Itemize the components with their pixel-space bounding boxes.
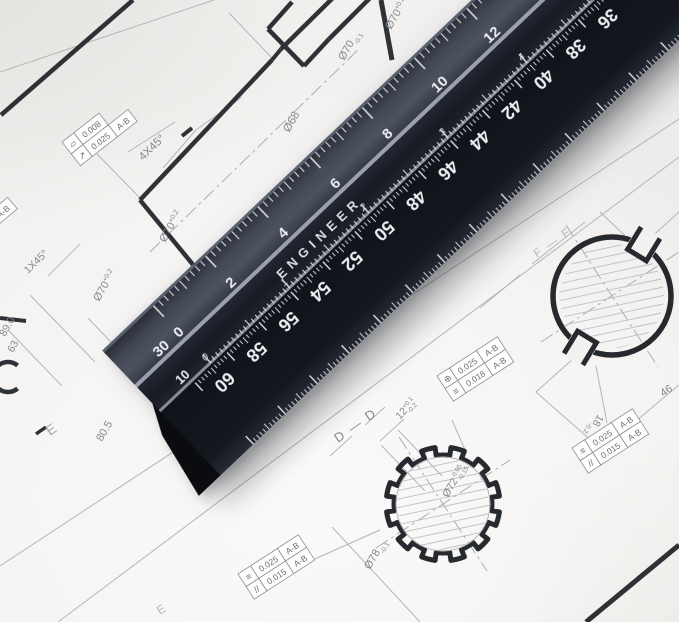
dimension-text: Ø68 <box>281 110 302 135</box>
section-label: D — D <box>331 405 380 445</box>
dimension-text: 4X45° <box>137 133 168 163</box>
dimension-text: 46 <box>658 383 675 400</box>
feature-control-frame: ≡0.025A-B//0.015A-B <box>238 535 315 599</box>
dimension-text: Ø70+0.2 <box>91 268 119 304</box>
section-label: E <box>154 600 170 617</box>
dimension-text: Ø70-0.1 <box>336 28 365 64</box>
photo-scene: ▱0.008↗0.025A-B0.025A-B↗0.008⊕0.025A-B≡0… <box>0 0 679 622</box>
dimension-text: 80.5 <box>94 419 115 444</box>
feature-control-frame: ≡0.025A-B//0.015A-B <box>572 409 649 473</box>
dimension-text: Ø70+0.2 <box>383 0 411 32</box>
dimension-text: 63 <box>5 338 21 354</box>
feature-control-frame: 0.025A-B <box>0 197 17 245</box>
dimension-text: 12+0.1-0.2 <box>393 395 420 423</box>
section-label: E <box>43 419 61 439</box>
dimension-text: 1X45° <box>22 248 51 277</box>
feature-control-frame: ▱0.008↗0.025A-B <box>62 98 137 166</box>
feature-control-frame: ⊕0.025A-B≡0.018A-B <box>437 337 514 401</box>
dimension-text: Ø78-0.1 <box>362 537 391 573</box>
